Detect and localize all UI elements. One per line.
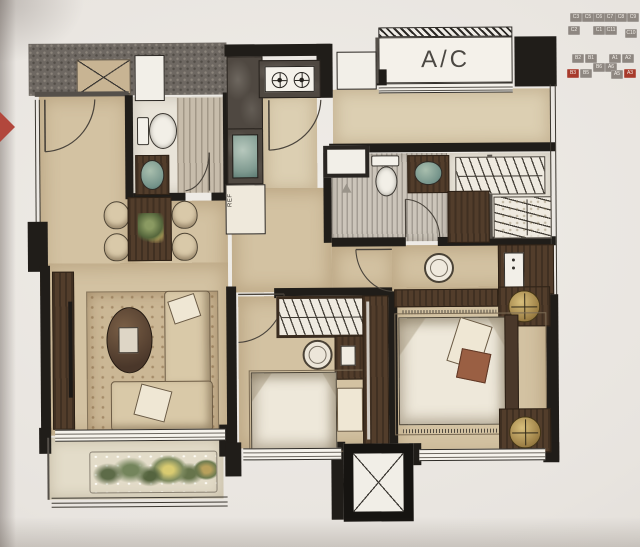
closet-hangers <box>455 156 545 195</box>
kitchen-counter <box>227 56 264 132</box>
pillow <box>337 388 363 432</box>
kitchen-sink <box>232 134 258 178</box>
refrigerator-box: REF <box>225 184 265 234</box>
window <box>419 448 545 461</box>
balcony-railing <box>52 497 228 508</box>
bathroom1-door-arc <box>183 151 211 193</box>
toilet-bowl <box>375 166 397 196</box>
window-wall <box>35 100 41 224</box>
washbasin <box>414 161 442 185</box>
floor-plan: A/C REF <box>0 0 640 547</box>
ledge-box <box>336 51 376 89</box>
entry-door-arc <box>43 97 97 153</box>
wall <box>39 428 51 454</box>
desk-chair <box>302 340 332 370</box>
master-door-arc <box>354 247 394 293</box>
stove <box>265 66 315 92</box>
window <box>55 429 225 442</box>
bedside-lamp-icon <box>509 416 541 448</box>
refrigerator-label: REF <box>227 193 233 207</box>
desk-item <box>341 346 356 366</box>
closet-cabinet <box>447 191 489 243</box>
closet-hangers <box>276 296 368 339</box>
tv <box>68 302 73 398</box>
dining-chair <box>104 201 130 229</box>
wall <box>224 44 330 57</box>
bathroom2-door-arc <box>403 197 441 239</box>
dimension-ticks <box>403 429 497 434</box>
dining-chair <box>172 233 198 261</box>
wall <box>514 36 556 86</box>
utility-hall-floor <box>333 88 551 146</box>
photo-bottom-shadow <box>0 517 640 547</box>
toilet-bowl <box>149 113 177 149</box>
balcony-side-wall <box>47 438 49 500</box>
floorplan-photo: C3 C5 C6 C7 C8 C9 C2 C1 C11 C10 B2 B1 A1… <box>0 0 640 547</box>
vanity-stool <box>424 253 454 283</box>
ac-platform: A/C <box>378 37 512 84</box>
closet-floor-texture <box>500 198 548 236</box>
toilet-tank <box>371 155 399 166</box>
burner-icon <box>294 72 310 88</box>
single-bed <box>251 372 338 451</box>
wall <box>35 91 129 97</box>
floor-drain-icon <box>341 184 351 193</box>
wall <box>225 442 241 476</box>
burner-icon <box>272 72 288 88</box>
wall <box>125 95 134 199</box>
vanity-knob <box>512 258 515 261</box>
vanity-knob <box>512 266 515 269</box>
window <box>243 448 341 461</box>
kitchen-door-arc <box>267 98 323 152</box>
dining-chair <box>104 233 130 261</box>
toilet-tank <box>137 117 149 145</box>
wall <box>332 237 406 247</box>
shaft-box <box>134 55 164 101</box>
ac-label: A/C <box>379 38 511 83</box>
table-tray <box>118 327 138 353</box>
bed-foot-console <box>394 289 498 308</box>
accent-pillow <box>456 348 491 383</box>
ac-vent-lines <box>379 83 513 94</box>
shaft-box <box>323 146 369 178</box>
wall <box>28 222 48 272</box>
washbasin <box>140 160 164 190</box>
table-plant <box>138 213 164 243</box>
dining-chair <box>172 201 198 229</box>
entry-cabinet <box>77 59 131 95</box>
wall <box>40 266 51 434</box>
balcony-planter <box>89 451 217 494</box>
shaft-box <box>343 443 414 521</box>
